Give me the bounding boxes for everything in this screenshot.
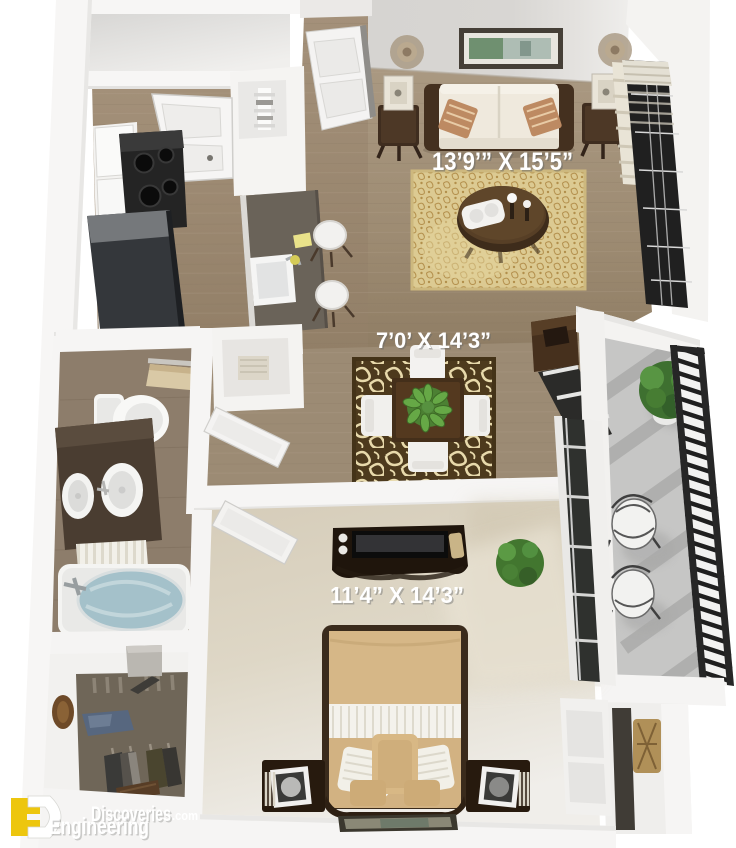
svg-text:Engineering: Engineering [49,813,149,839]
svg-text:13’9’” X 15’5”: 13’9’” X 15’5” [432,148,573,176]
svg-text:.com: .com [172,808,198,823]
svg-text:7’0’ X 14’3”: 7’0’ X 14’3” [376,328,491,353]
svg-text:11’4” X 14’3”: 11’4” X 14’3” [330,582,464,608]
